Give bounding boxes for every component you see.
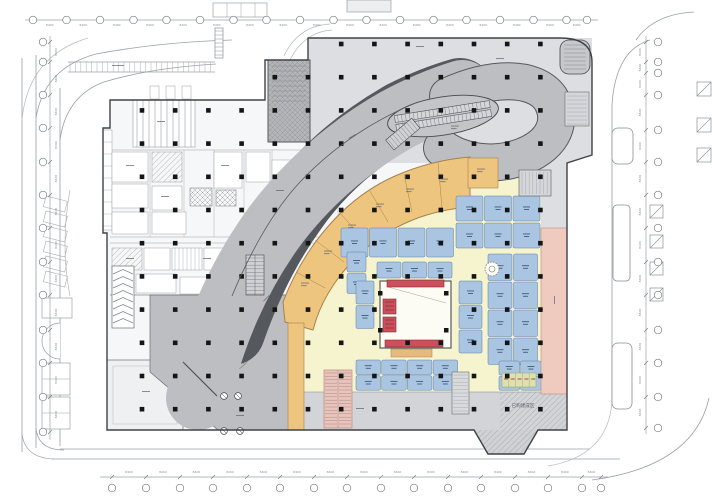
svg-text:8400: 8400	[54, 75, 58, 83]
entry-plaza-label: 已购建成区	[512, 402, 535, 409]
svg-text:8400: 8400	[638, 409, 642, 417]
svg-text:8400: 8400	[226, 470, 234, 474]
svg-text:8400: 8400	[394, 470, 402, 474]
svg-text:8400: 8400	[54, 208, 58, 216]
svg-text:8400: 8400	[279, 23, 287, 27]
svg-text:8400: 8400	[54, 108, 58, 116]
svg-text:8400: 8400	[638, 309, 642, 317]
svg-text:8400: 8400	[638, 241, 642, 249]
svg-text:8400: 8400	[638, 48, 642, 56]
svg-text:8400: 8400	[573, 23, 581, 27]
svg-text:8400: 8400	[360, 470, 368, 474]
svg-text:8400: 8400	[513, 23, 521, 27]
svg-text:8400: 8400	[113, 23, 121, 27]
svg-text:8400: 8400	[638, 142, 642, 150]
svg-text:8400: 8400	[446, 23, 454, 27]
svg-text:8400: 8400	[427, 470, 435, 474]
svg-text:8400: 8400	[260, 470, 268, 474]
svg-text:8400: 8400	[528, 470, 536, 474]
svg-text:8400: 8400	[79, 23, 87, 27]
svg-text:8400: 8400	[54, 141, 58, 149]
svg-text:8400: 8400	[479, 23, 487, 27]
svg-text:8400: 8400	[638, 376, 642, 384]
svg-text:8400: 8400	[638, 175, 642, 183]
svg-text:8400: 8400	[246, 23, 254, 27]
svg-text:8400: 8400	[125, 470, 133, 474]
svg-text:8400: 8400	[638, 80, 642, 88]
svg-text:8400: 8400	[313, 23, 321, 27]
svg-text:8400: 8400	[54, 48, 58, 56]
svg-text:8400: 8400	[638, 275, 642, 283]
svg-text:8400: 8400	[293, 470, 301, 474]
svg-text:8400: 8400	[159, 470, 167, 474]
svg-text:8400: 8400	[638, 343, 642, 351]
svg-text:8400: 8400	[588, 470, 596, 474]
svg-text:8400: 8400	[54, 241, 58, 249]
svg-text:8400: 8400	[54, 275, 58, 283]
svg-text:8400: 8400	[213, 23, 221, 27]
svg-text:8400: 8400	[461, 470, 469, 474]
svg-text:8400: 8400	[179, 23, 187, 27]
svg-text:8400: 8400	[54, 411, 58, 419]
svg-text:8400: 8400	[379, 23, 387, 27]
svg-text:8400: 8400	[54, 175, 58, 183]
svg-text:8400: 8400	[413, 23, 421, 27]
plan-labels: 已购建成区	[512, 402, 535, 409]
svg-text:8400: 8400	[146, 23, 154, 27]
svg-text:8400: 8400	[638, 109, 642, 117]
svg-text:8400: 8400	[46, 23, 54, 27]
svg-text:8400: 8400	[494, 470, 502, 474]
floor-plan-canvas: 8400840084008400840084008400840084008400…	[0, 0, 712, 500]
svg-text:8400: 8400	[561, 470, 569, 474]
floor-plan-viewport: 8400840084008400840084008400840084008400…	[0, 0, 712, 500]
svg-text:8400: 8400	[638, 208, 642, 216]
svg-text:8400: 8400	[327, 470, 335, 474]
svg-text:8400: 8400	[346, 23, 354, 27]
svg-text:8400: 8400	[193, 470, 201, 474]
svg-text:8400: 8400	[54, 376, 58, 384]
svg-text:8400: 8400	[638, 64, 642, 72]
svg-text:8400: 8400	[54, 309, 58, 317]
svg-text:8400: 8400	[546, 23, 554, 27]
svg-text:8400: 8400	[54, 343, 58, 351]
